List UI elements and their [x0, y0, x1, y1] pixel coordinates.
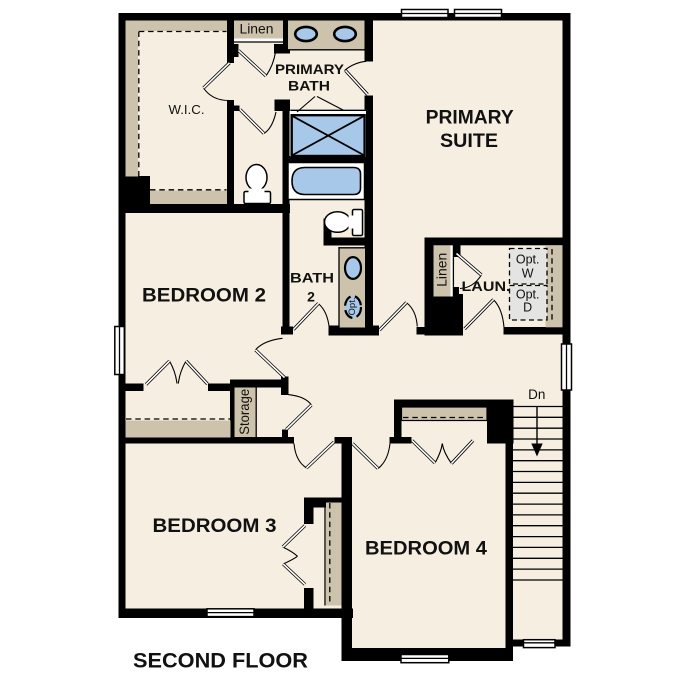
svg-text:2: 2: [307, 289, 315, 305]
svg-text:SUITE: SUITE: [440, 131, 498, 152]
svg-text:BATH: BATH: [290, 270, 334, 286]
svg-text:Opt.: Opt.: [516, 252, 540, 266]
svg-text:PRIMARY: PRIMARY: [275, 61, 345, 77]
svg-text:Linen: Linen: [434, 253, 449, 287]
svg-text:BEDROOM 4: BEDROOM 4: [365, 539, 487, 560]
svg-text:Dn: Dn: [528, 387, 545, 402]
svg-text:Opt.: Opt.: [347, 298, 358, 316]
svg-text:BATH: BATH: [288, 78, 330, 94]
svg-text:BEDROOM 2: BEDROOM 2: [142, 286, 266, 307]
svg-text:SECOND FLOOR: SECOND FLOOR: [133, 649, 308, 673]
svg-text:BEDROOM 3: BEDROOM 3: [153, 516, 277, 537]
svg-text:Linen: Linen: [240, 22, 274, 37]
svg-text:PRIMARY: PRIMARY: [426, 108, 514, 129]
svg-text:W: W: [522, 267, 534, 281]
svg-text:LAUN.: LAUN.: [462, 278, 511, 294]
svg-text:Opt.: Opt.: [516, 288, 540, 302]
svg-text:Storage: Storage: [237, 389, 252, 435]
svg-text:W.I.C.: W.I.C.: [169, 103, 205, 117]
svg-text:D: D: [523, 301, 532, 315]
